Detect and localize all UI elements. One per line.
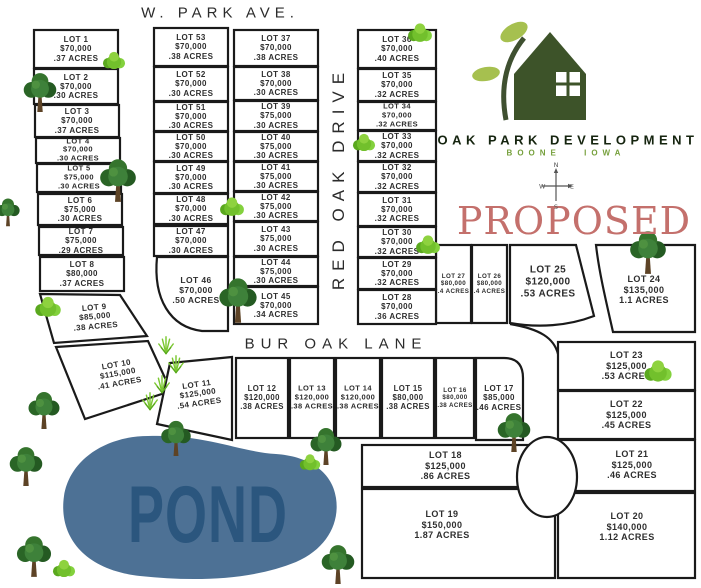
lot-12-acres: .38 ACRES: [240, 403, 284, 412]
lot-7-name: LOT 7: [59, 227, 104, 236]
lot-22-name: LOT 22: [602, 399, 652, 410]
lot-17-acres: .46 ACRES: [477, 403, 522, 412]
lot-51-acres: .30 ACRES: [169, 121, 214, 130]
lot-50-label: LOT 50$70,000.30 ACRES: [169, 132, 214, 160]
lot-18-price: $125,000: [421, 461, 471, 472]
lot-48-label: LOT 48$70,000.30 ACRES: [169, 195, 214, 223]
lot-21-label: LOT 21$125,000.46 ACRES: [607, 449, 657, 481]
lot-18-acres: .86 ACRES: [421, 471, 471, 482]
lot-20-price: $140,000: [599, 522, 654, 533]
lot-20-acres: 1.12 ACRES: [599, 532, 654, 543]
lot-40-acres: .30 ACRES: [254, 151, 299, 160]
lot-27-acres: .4 ACRES: [438, 288, 470, 295]
lot-1-name: LOT 1: [54, 35, 99, 44]
lot-28-name: LOT 28: [375, 293, 420, 302]
lot-35-label: LOT 35$70,000.32 ACRES: [375, 71, 420, 99]
lot-8-label: LOT 8$80,000.37 ACRES: [60, 260, 105, 288]
lot-38-label: LOT 38$70,000.30 ACRES: [254, 69, 299, 97]
lot-27-name: LOT 27: [438, 273, 470, 280]
lot-31-name: LOT 31: [375, 195, 420, 204]
lot-36-label: LOT 36$70,000.40 ACRES: [375, 35, 420, 63]
lot-38-name: LOT 38: [254, 69, 299, 78]
pond-label: POND: [128, 469, 288, 562]
lot-23-price: $125,000: [602, 361, 652, 372]
lot-53-price: $70,000: [169, 42, 214, 51]
lot-52-label: LOT 52$70,000.30 ACRES: [169, 70, 214, 98]
lot-7-acres: .29 ACRES: [59, 246, 104, 255]
lot-17-name: LOT 17: [477, 384, 522, 393]
lot-15-acres: .38 ACRES: [386, 403, 430, 412]
lot-20-name: LOT 20: [599, 511, 654, 522]
leaf-icon: [471, 65, 501, 84]
lot-22-acres: .45 ACRES: [602, 420, 652, 431]
street-label-bur-oak-lane: BUR OAK LANE: [245, 336, 428, 353]
logo-subtitle: BOONE IOWA: [507, 149, 626, 158]
lot-20-label: LOT 20$140,0001.12 ACRES: [599, 511, 654, 543]
lot-32-price: $70,000: [375, 172, 420, 181]
lot-28-label: LOT 28$70,000.36 ACRES: [375, 293, 420, 321]
lot-40-name: LOT 40: [254, 132, 299, 141]
lot-43-name: LOT 43: [254, 225, 299, 234]
lot-9-label: LOT 9$85,000.38 ACRES: [72, 301, 119, 333]
logo-title: OAK PARK DEVELOPMENT: [438, 133, 699, 148]
lot-33-price: $70,000: [375, 141, 420, 150]
lot-37-price: $70,000: [254, 43, 299, 52]
lot-27-label: LOT 27$80,000.4 ACRES: [438, 273, 470, 295]
lot-44-name: LOT 44: [254, 257, 299, 266]
lot-51-label: LOT 51$70,000.30 ACRES: [169, 102, 214, 130]
lot-7-label: LOT 7$75,000.29 ACRES: [59, 227, 104, 255]
lot-47-price: $70,000: [169, 236, 214, 245]
lot-23-name: LOT 23: [602, 350, 652, 361]
lot-37-acres: .38 ACRES: [254, 53, 299, 62]
lot-14-label: LOT 14$120,000.38 ACRES: [337, 385, 379, 412]
lot-2-acres: .30 ACRES: [54, 91, 99, 100]
lot-50-acres: .30 ACRES: [169, 151, 214, 160]
lot-26-name: LOT 26: [474, 273, 506, 280]
lot-45-label: LOT 45$70,000.34 ACRES: [254, 291, 299, 319]
lot-19-label: LOT 19$150,0001.87 ACRES: [414, 509, 469, 541]
lot-18-name: LOT 18: [421, 450, 471, 461]
lot-3-price: $70,000: [55, 116, 100, 125]
lot-25-label: LOT 25$120,000.53 ACRES: [521, 264, 576, 299]
lot-6-name: LOT 6: [58, 195, 103, 204]
lot-24-name: LOT 24: [619, 274, 669, 285]
lot-33-label: LOT 33$70,000.32 ACRES: [375, 132, 420, 160]
lot-1-label: LOT 1$70,000.37 ACRES: [54, 35, 99, 63]
compass-n: N: [554, 162, 559, 169]
lot-1-price: $70,000: [54, 44, 99, 53]
lot-24-acres: 1.1 ACRES: [619, 295, 669, 306]
street-label-w-park-ave: W. PARK AVE.: [141, 5, 299, 22]
lot-15-price: $80,000: [386, 393, 430, 402]
lot-50-name: LOT 50: [169, 132, 214, 141]
lot-15-label: LOT 15$80,000.38 ACRES: [386, 384, 430, 412]
lot-44-price: $75,000: [254, 267, 299, 276]
lot-33-acres: .32 ACRES: [375, 151, 420, 160]
lot-8-acres: .37 ACRES: [60, 279, 105, 288]
lot-21-price: $125,000: [607, 460, 657, 471]
lot-39-acres: .30 ACRES: [254, 121, 299, 130]
lot-30-acres: .32 ACRES: [375, 247, 420, 256]
lot-15-name: LOT 15: [386, 384, 430, 393]
lot-51-price: $70,000: [169, 112, 214, 121]
lot-46-name: LOT 46: [172, 275, 219, 285]
lot-37-label: LOT 37$70,000.38 ACRES: [254, 34, 299, 62]
lot-29-price: $70,000: [375, 269, 420, 278]
lot-4-acres: .30 ACRES: [57, 155, 99, 164]
lot-53-label: LOT 53$70,000.38 ACRES: [169, 33, 214, 61]
lot-19-name: LOT 19: [414, 509, 469, 520]
proposed-label: PROPOSED: [457, 199, 691, 243]
lot-47-label: LOT 47$70,000.30 ACRES: [169, 227, 214, 255]
lot-12-name: LOT 12: [240, 384, 284, 393]
lot-23-acres: .53 ACRES: [602, 371, 652, 382]
lot-32-name: LOT 32: [375, 163, 420, 172]
lot-26-label: LOT 26$80,000.4 ACRES: [474, 273, 506, 295]
lot-28-acres: .36 ACRES: [375, 312, 420, 321]
lot-43-price: $75,000: [254, 234, 299, 243]
lot-1-acres: .37 ACRES: [54, 54, 99, 63]
lot-42-label: LOT 42$75,000.30 ACRES: [254, 192, 299, 220]
lot-52-price: $70,000: [169, 79, 214, 88]
lot-41-price: $75,000: [254, 172, 299, 181]
lot-24-label: LOT 24$135,0001.1 ACRES: [619, 274, 669, 306]
lot-39-label: LOT 39$75,000.30 ACRES: [254, 102, 299, 130]
lot-42-name: LOT 42: [254, 192, 299, 201]
lot-29-label: LOT 29$70,000.32 ACRES: [375, 259, 420, 287]
lot-13-acres: .38 ACRES: [291, 402, 333, 411]
lot-18-label: LOT 18$125,000.86 ACRES: [421, 450, 471, 482]
lot-49-name: LOT 49: [169, 163, 214, 172]
lot-41-name: LOT 41: [254, 162, 299, 171]
lot-52-acres: .30 ACRES: [169, 89, 214, 98]
lot-6-acres: .30 ACRES: [58, 214, 103, 223]
lot-41-label: LOT 41$75,000.30 ACRES: [254, 162, 299, 190]
lot-46-label: LOT 46$70,000.50 ACRES: [172, 275, 219, 305]
lot-47-acres: .30 ACRES: [169, 246, 214, 255]
plat-map: LOT 1$70,000.37 ACRESLOT 2$70,000.30 ACR…: [0, 0, 701, 588]
lot-38-price: $70,000: [254, 79, 299, 88]
lot-36-acres: .40 ACRES: [375, 54, 420, 63]
house-logo-icon: [470, 16, 620, 128]
lot-3-acres: .37 ACRES: [55, 126, 100, 135]
lot-5-acres: .30 ACRES: [58, 182, 100, 191]
lot-37-name: LOT 37: [254, 34, 299, 43]
lot-42-price: $75,000: [254, 202, 299, 211]
lot-3-name: LOT 3: [55, 107, 100, 116]
lot-17-label: LOT 17$85,000.46 ACRES: [477, 384, 522, 412]
lot-44-label: LOT 44$75,000.30 ACRES: [254, 257, 299, 285]
lot-49-price: $70,000: [169, 173, 214, 182]
lot-34-acres: .32 ACRES: [376, 120, 418, 129]
lot-16-price: $80,000: [437, 394, 472, 401]
lot-51-name: LOT 51: [169, 102, 214, 111]
lot-21-name: LOT 21: [607, 449, 657, 460]
lot-40-price: $75,000: [254, 142, 299, 151]
lot-30-label: LOT 30$70,000.32 ACRES: [375, 228, 420, 256]
lot-30-price: $70,000: [375, 237, 420, 246]
lot-40-label: LOT 40$75,000.30 ACRES: [254, 132, 299, 160]
lot-49-acres: .30 ACRES: [169, 182, 214, 191]
lot-16-acres: .38 ACRES: [437, 402, 472, 409]
lot-12-price: $120,000: [240, 393, 284, 402]
lot-12-label: LOT 12$120,000.38 ACRES: [240, 384, 284, 412]
lot-28-price: $70,000: [375, 302, 420, 311]
lot-32-acres: .32 ACRES: [375, 182, 420, 191]
lot-47-name: LOT 47: [169, 227, 214, 236]
lot-31-label: LOT 31$70,000.32 ACRES: [375, 195, 420, 223]
lot-53-acres: .38 ACRES: [169, 52, 214, 61]
lot-2-label: LOT 2$70,000.30 ACRES: [54, 72, 99, 100]
lot-8-price: $80,000: [60, 269, 105, 278]
lot-6-price: $75,000: [58, 205, 103, 214]
road-curve: [510, 324, 558, 354]
lot-25-acres: .53 ACRES: [521, 288, 576, 300]
lot-35-name: LOT 35: [375, 71, 420, 80]
lot-29-acres: .32 ACRES: [375, 278, 420, 287]
cul-de-sac: [517, 437, 577, 517]
lot-53-name: LOT 53: [169, 33, 214, 42]
lot-17-price: $85,000: [477, 393, 522, 402]
lot-3-label: LOT 3$70,000.37 ACRES: [55, 107, 100, 135]
lot-22-label: LOT 22$125,000.45 ACRES: [602, 399, 652, 431]
lot-39-name: LOT 39: [254, 102, 299, 111]
lot-42-acres: .30 ACRES: [254, 211, 299, 220]
lot-46-price: $70,000: [172, 285, 219, 295]
lot-45-name: LOT 45: [254, 291, 299, 300]
lot-29-name: LOT 29: [375, 259, 420, 268]
lot-31-acres: .32 ACRES: [375, 214, 420, 223]
lot-16-label: LOT 16$80,000.38 ACRES: [437, 387, 472, 409]
lot-8-name: LOT 8: [60, 260, 105, 269]
lot-36-name: LOT 36: [375, 35, 420, 44]
lot-25-price: $120,000: [521, 276, 576, 288]
lot-46-acres: .50 ACRES: [172, 295, 219, 305]
lot-26-price: $80,000: [474, 280, 506, 287]
lot-48-name: LOT 48: [169, 195, 214, 204]
lot-25-name: LOT 25: [521, 264, 576, 276]
lot-36-price: $70,000: [375, 44, 420, 53]
lot-48-price: $70,000: [169, 204, 214, 213]
compass-e: E: [570, 183, 574, 191]
lot-39-price: $75,000: [254, 111, 299, 120]
lot-50-price: $70,000: [169, 142, 214, 151]
lot-13-label: LOT 13$120,000.38 ACRES: [291, 385, 333, 412]
lot-43-acres: .30 ACRES: [254, 244, 299, 253]
lot-2-name: LOT 2: [54, 72, 99, 81]
lot-41-acres: .30 ACRES: [254, 181, 299, 190]
street-label-red-oak-drive: RED OAK DRIVE: [329, 66, 349, 290]
compass-icon: N S W E: [538, 162, 574, 210]
lot-19-acres: 1.87 ACRES: [414, 530, 469, 541]
lot-44-acres: .30 ACRES: [254, 276, 299, 285]
lot-31-price: $70,000: [375, 205, 420, 214]
lot-24-price: $135,000: [619, 285, 669, 296]
lot-34-label: LOT 34$70,000.32 ACRES: [376, 103, 418, 130]
lot-5-label: LOT 5$75,000.30 ACRES: [58, 165, 100, 192]
lot-48-acres: .30 ACRES: [169, 214, 214, 223]
lot-35-acres: .32 ACRES: [375, 90, 420, 99]
lot-35-price: $70,000: [375, 80, 420, 89]
lot-23-label: LOT 23$125,000.53 ACRES: [602, 350, 652, 382]
compass-w: W: [539, 183, 546, 191]
lot-52-name: LOT 52: [169, 70, 214, 79]
lot-49-label: LOT 49$70,000.30 ACRES: [169, 163, 214, 191]
lot-27-price: $80,000: [438, 280, 470, 287]
lot-30-name: LOT 30: [375, 228, 420, 237]
lot-45-price: $70,000: [254, 301, 299, 310]
lot-45-acres: .34 ACRES: [254, 310, 299, 319]
lot-33-name: LOT 33: [375, 132, 420, 141]
lot-32-label: LOT 32$70,000.32 ACRES: [375, 163, 420, 191]
lot-16-name: LOT 16: [437, 387, 472, 394]
lot-26-acres: .4 ACRES: [474, 288, 506, 295]
lot-21-acres: .46 ACRES: [607, 470, 657, 481]
lot-14-acres: .38 ACRES: [337, 402, 379, 411]
lot-4-label: LOT 4$70,000.30 ACRES: [57, 137, 99, 164]
lot-2-price: $70,000: [54, 82, 99, 91]
lot-7-price: $75,000: [59, 236, 104, 245]
lot-38-acres: .30 ACRES: [254, 88, 299, 97]
lot-22-price: $125,000: [602, 410, 652, 421]
compass-s: S: [554, 203, 558, 210]
leaf-icon: [497, 18, 531, 47]
lot-6-label: LOT 6$75,000.30 ACRES: [58, 195, 103, 223]
lot-43-label: LOT 43$75,000.30 ACRES: [254, 225, 299, 253]
lot-19-price: $150,000: [414, 520, 469, 531]
